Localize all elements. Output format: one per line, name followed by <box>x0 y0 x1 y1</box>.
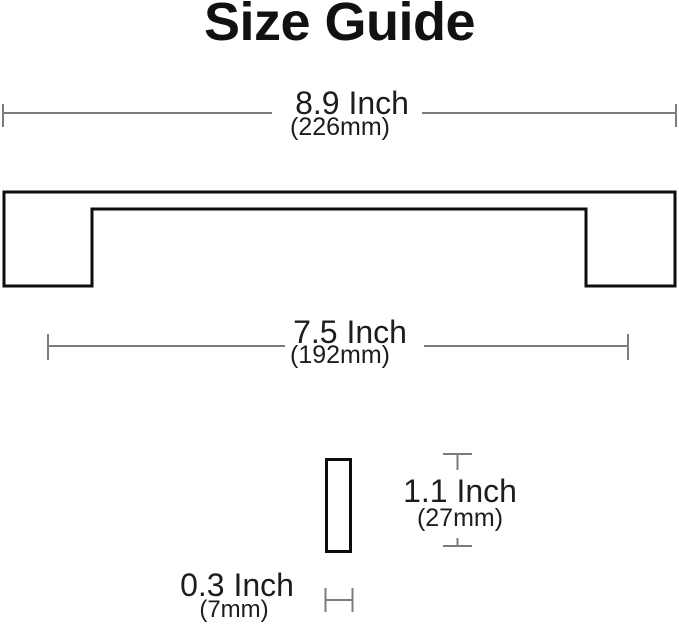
handle-side-view-drawing <box>4 192 675 286</box>
size-guide-diagram: Size Guide <box>0 0 679 626</box>
hole-spacing-mm-label: (192mm) <box>290 343 390 368</box>
thickness-mm-label: (7mm) <box>199 598 268 622</box>
height-mm-label: (27mm) <box>417 506 503 531</box>
handle-cross-section-rect <box>327 460 351 552</box>
overall-length-mm-label: (226mm) <box>290 115 390 140</box>
height-inch-label: 1.1 Inch <box>403 475 517 507</box>
thickness-dimension-marks <box>326 588 353 612</box>
